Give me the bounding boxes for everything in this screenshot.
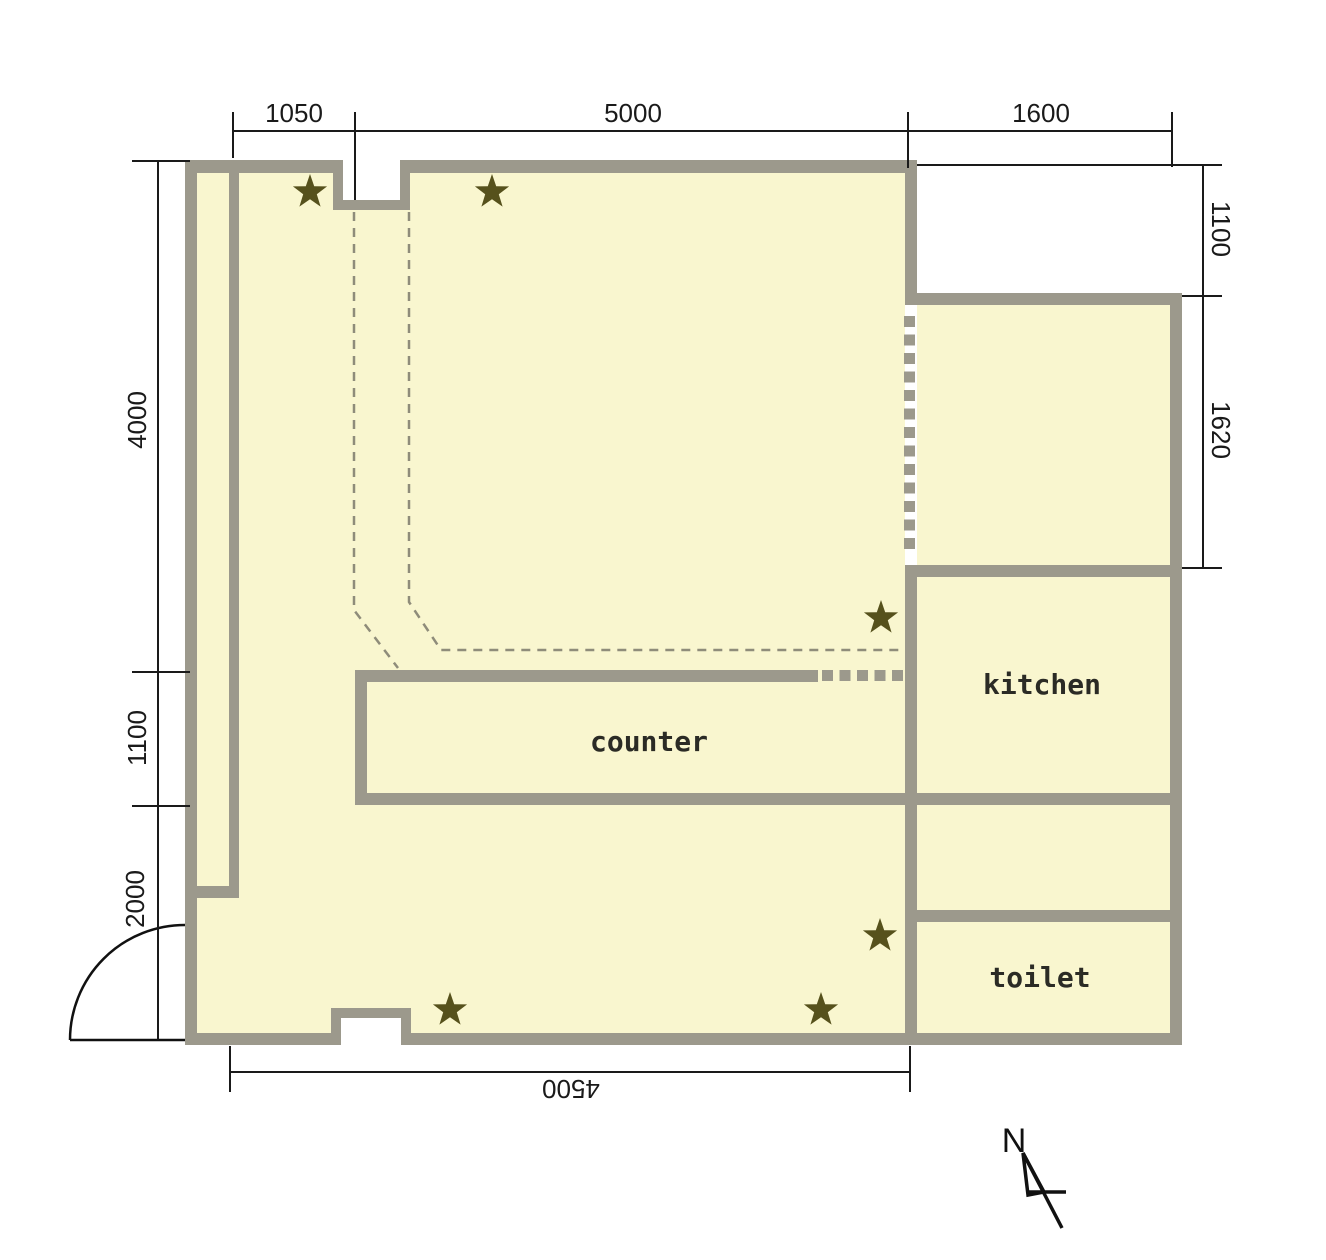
dotted-wall-dot bbox=[904, 538, 915, 549]
dotted-wall-dot bbox=[904, 427, 915, 438]
opening-cap bbox=[333, 200, 410, 210]
dim-label-top-1600: 1600 bbox=[1012, 98, 1070, 128]
dotted-wall-dot bbox=[904, 520, 915, 531]
bottom-wall-opening bbox=[331, 1008, 411, 1045]
niche-wall bbox=[229, 160, 239, 898]
dotted-wall-dot bbox=[904, 446, 915, 457]
dotted-wall-dot bbox=[904, 353, 915, 364]
counter-label: counter bbox=[590, 725, 708, 758]
north-arrow: N bbox=[1002, 1122, 1066, 1228]
upper-right-room-floor bbox=[917, 305, 1170, 565]
wall-segment bbox=[1170, 293, 1182, 1045]
dotted-wall-dot bbox=[904, 390, 915, 401]
niche-wall-cap bbox=[195, 886, 239, 898]
dotted-wall-dot bbox=[904, 335, 915, 346]
dim-label-right-1620: 1620 bbox=[1206, 401, 1236, 459]
door-swing-arc bbox=[70, 925, 185, 1040]
opening-jamb bbox=[331, 1018, 341, 1033]
dim-label-left-1100: 1100 bbox=[122, 710, 152, 766]
wall-segment bbox=[917, 565, 1170, 577]
dotted-wall-dot bbox=[904, 409, 915, 420]
top-wall-opening bbox=[333, 156, 410, 210]
toilet-label: toilet bbox=[989, 961, 1090, 994]
north-needle-triangle bbox=[1023, 1153, 1044, 1195]
opening-gap bbox=[343, 156, 400, 200]
dim-label-top-1050: 1050 bbox=[265, 98, 323, 128]
dotted-wall-dot bbox=[822, 670, 833, 681]
opening-jamb bbox=[401, 1018, 411, 1033]
entrance-door bbox=[70, 925, 185, 1040]
dim-label-top-5000: 5000 bbox=[604, 98, 662, 128]
wall-segment bbox=[917, 910, 1170, 922]
dotted-wall-dot bbox=[840, 670, 851, 681]
dotted-wall-dot bbox=[904, 316, 915, 327]
main-room-floor bbox=[197, 172, 905, 1035]
dim-label-left-4000: 4000 bbox=[122, 391, 152, 449]
dim-label-right-1100: 1100 bbox=[1206, 201, 1236, 257]
opening-cap bbox=[331, 1008, 411, 1018]
kitchen-label: kitchen bbox=[983, 668, 1101, 701]
back-room-floor bbox=[917, 805, 1170, 910]
counter-left-wall bbox=[355, 670, 367, 805]
wall-segment bbox=[185, 1033, 1182, 1045]
dotted-wall-dot bbox=[892, 670, 903, 681]
dotted-wall-dot bbox=[875, 670, 886, 681]
dotted-wall-dot bbox=[904, 501, 915, 512]
wall-segment bbox=[355, 793, 1170, 805]
floor-plan-page: 1050 5000 1600 4000 1100 2000 1100 1620 … bbox=[0, 0, 1326, 1260]
dotted-wall-dot bbox=[904, 464, 915, 475]
opening-gap bbox=[341, 1018, 401, 1045]
wall-segment bbox=[905, 293, 1182, 305]
dotted-wall-dot bbox=[904, 372, 915, 383]
dim-label-left-2000: 2000 bbox=[120, 870, 150, 928]
dotted-wall-dot bbox=[857, 670, 868, 681]
wall-segment bbox=[185, 160, 917, 173]
floor-plan-canvas: 1050 5000 1600 4000 1100 2000 1100 1620 … bbox=[0, 0, 1326, 1260]
dim-label-bottom-4500: 4500 bbox=[542, 1074, 600, 1104]
counter-top-wall bbox=[355, 670, 818, 682]
wall-segment bbox=[185, 160, 197, 1045]
wall-segment bbox=[905, 160, 917, 302]
dotted-wall-dot bbox=[904, 483, 915, 494]
